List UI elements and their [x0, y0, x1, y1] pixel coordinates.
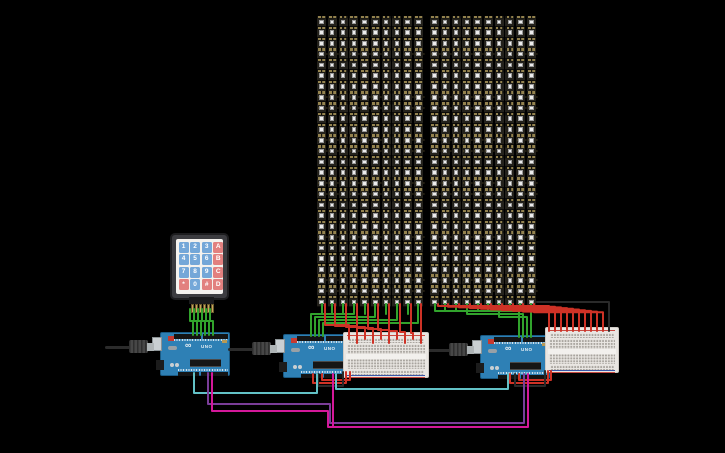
wire-keypad-wire-3[interactable]: [198, 309, 201, 335]
wire-m1-power-9[interactable]: [411, 304, 413, 339]
circuit-canvas: 123A456B789C*0#D∞UNO∞UNO∞UNO: [0, 0, 725, 453]
wire-keypad-wire-1[interactable]: [190, 309, 193, 335]
wire-keypad-wire-6[interactable]: [210, 309, 213, 335]
wire-serial-purple[interactable]: [208, 373, 524, 423]
wire-serial-teal-2[interactable]: [336, 374, 508, 389]
wire-layer: [0, 0, 725, 453]
wire-serial-magenta-1[interactable]: [212, 373, 528, 427]
wire-keypad-wire-4[interactable]: [202, 309, 205, 335]
wire-keypad-wire-2[interactable]: [194, 309, 197, 335]
wire-keypad-wire-5[interactable]: [206, 309, 209, 335]
wire-m1-power-7[interactable]: [389, 304, 397, 339]
